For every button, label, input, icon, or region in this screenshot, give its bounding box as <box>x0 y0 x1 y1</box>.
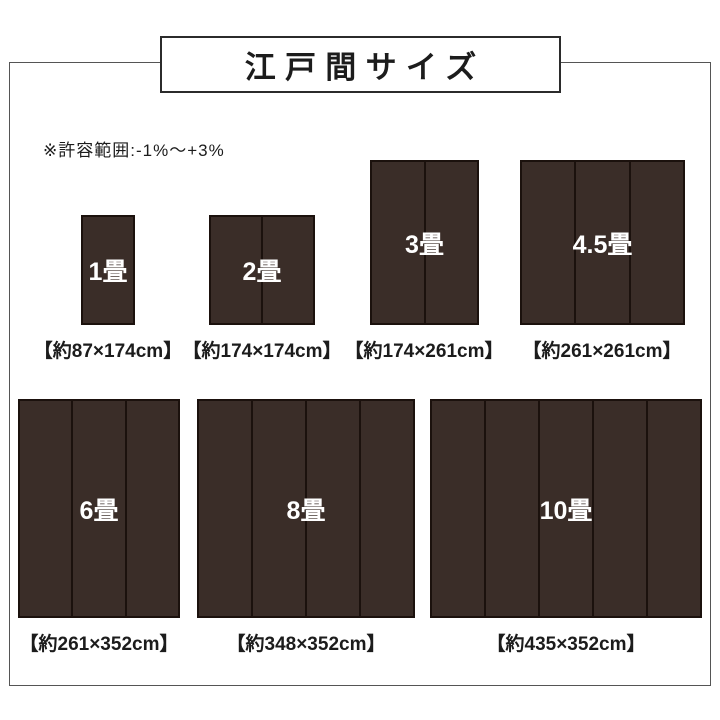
mat-10jo-label: 10畳 <box>432 401 700 616</box>
page-title: 江戸間サイズ <box>235 42 485 87</box>
mat-8jo-dims: 【約348×352cm】 <box>221 629 391 656</box>
mat-10jo: 10畳 <box>430 399 702 618</box>
mat-8jo-label: 8畳 <box>199 401 413 616</box>
mat-2jo-label: 2畳 <box>211 217 313 323</box>
mat-1jo-label: 1畳 <box>83 217 133 323</box>
mat-10jo-dims: 【約435×352cm】 <box>481 629 651 656</box>
mat-1jo: 1畳 <box>81 215 135 325</box>
mat-2jo-dims: 【約174×174cm】 <box>177 336 347 363</box>
mat-3jo-dims: 【約174×261cm】 <box>339 336 509 363</box>
mat-1jo-dims: 【約87×174cm】 <box>23 336 193 363</box>
mat-6jo-label: 6畳 <box>20 401 178 616</box>
mat-3jo-label: 3畳 <box>372 162 477 323</box>
title-box: 江戸間サイズ <box>160 36 561 93</box>
mat-8jo: 8畳 <box>197 399 415 618</box>
mat-2jo: 2畳 <box>209 215 315 325</box>
mat-4-5jo-label: 4.5畳 <box>522 162 683 323</box>
mat-4-5jo-dims: 【約261×261cm】 <box>517 336 687 363</box>
mat-6jo: 6畳 <box>18 399 180 618</box>
mat-3jo: 3畳 <box>370 160 479 325</box>
tolerance-note: ※許容範囲:-1%〜+3% <box>43 136 225 161</box>
mat-6jo-dims: 【約261×352cm】 <box>14 629 184 656</box>
size-diagram: 江戸間サイズ ※許容範囲:-1%〜+3% 1畳 【約87×174cm】 2畳 【… <box>0 0 720 720</box>
mat-4-5jo: 4.5畳 <box>520 160 685 325</box>
